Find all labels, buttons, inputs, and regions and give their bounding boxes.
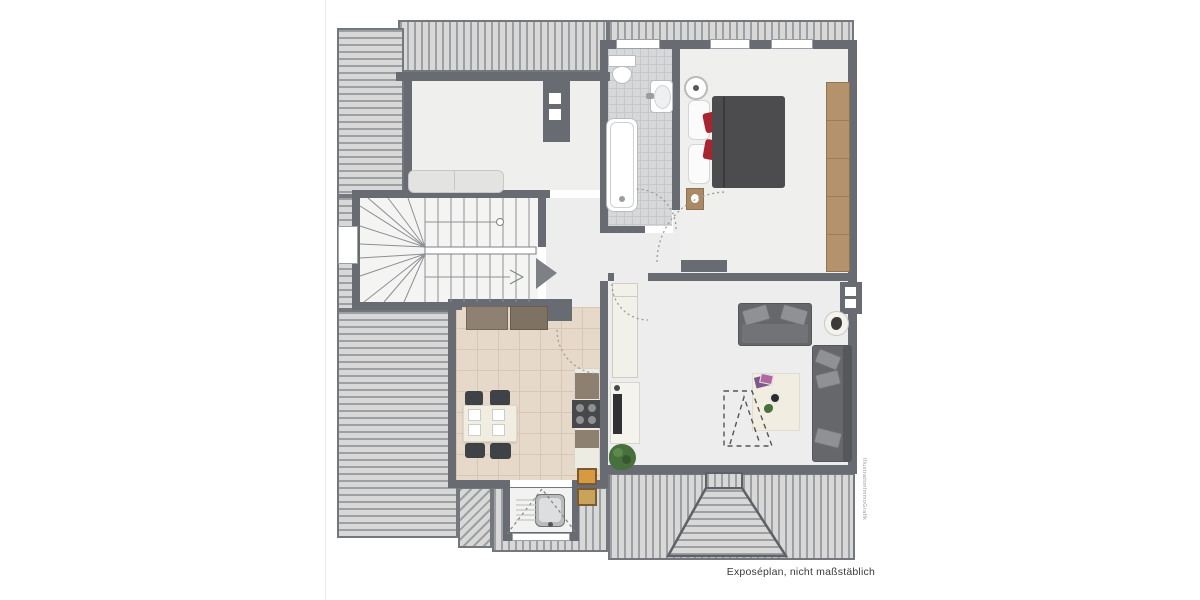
plan-caption: Exposéplan, nicht maßstäblich [620,566,875,580]
kitchen-dormer-rooflines [507,489,577,534]
bathroom-door-arc [636,189,676,229]
living-door-arc [612,284,648,320]
kitchen-door-arc [557,330,601,374]
roof-dormer-bottom-right [668,473,786,556]
plan-watermark: IllustrationImmoGrafik [857,458,867,538]
staircase [360,198,536,302]
stair-direction-marker [536,258,557,289]
plan-linework-overlay [0,0,1200,600]
floor-plan-page: Exposéplan, nicht maßstäblich Illustrati… [0,0,1200,600]
loft-ladder-outline [724,391,772,446]
door-arcs [557,189,727,374]
bedroom-door-arc [657,192,727,262]
